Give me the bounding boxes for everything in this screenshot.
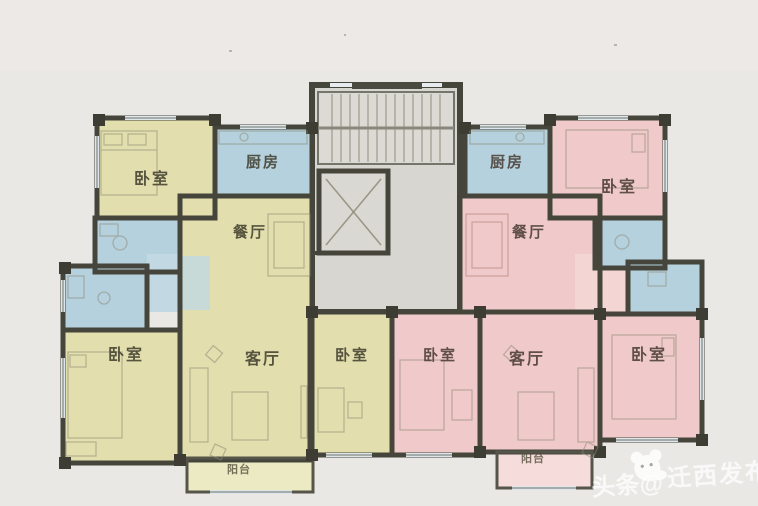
- label-right-dining: 餐厅: [512, 223, 546, 241]
- staircase-icon: [318, 92, 454, 164]
- room-left-bedroom-mid: [310, 312, 392, 455]
- elevator-x-icon: [319, 171, 388, 253]
- floor-plan-screenshot: 卧室 厨房 餐厅 卧室 客厅 卧室 阳台 厨房 卧室 餐厅 卧室 客厅 卧室 阳…: [0, 0, 758, 506]
- label-right-bedroom-mid: 卧室: [423, 346, 457, 364]
- label-left-living: 客厅: [245, 349, 281, 368]
- room-left-bath3: [182, 256, 210, 310]
- floor-plan-canvas: 卧室 厨房 餐厅 卧室 客厅 卧室 阳台 厨房 卧室 餐厅 卧室 客厅 卧室 阳…: [0, 0, 758, 506]
- label-left-bedroom-top: 卧室: [134, 169, 170, 188]
- label-left-balcony: 阳台: [227, 462, 251, 476]
- room-left-bedroom-top: [97, 118, 215, 218]
- label-left-bedroom-mid: 卧室: [335, 346, 369, 364]
- label-left-kitchen: 厨房: [246, 153, 280, 171]
- label-right-living: 客厅: [509, 349, 545, 368]
- room-right-bedroom-mid: [392, 312, 480, 455]
- room-right-living: [480, 312, 600, 452]
- central-core: [312, 82, 460, 312]
- label-left-bedroom-bottom: 卧室: [108, 345, 144, 364]
- room-right-bedroom-bottom: [600, 314, 702, 440]
- label-right-balcony: 阳台: [521, 451, 545, 465]
- room-left-hall: [147, 254, 178, 312]
- label-right-bedroom-bottom: 卧室: [631, 345, 667, 364]
- label-left-dining: 餐厅: [233, 223, 267, 241]
- paper-top-strip: [0, 0, 758, 70]
- label-right-kitchen: 厨房: [490, 153, 524, 171]
- label-right-bedroom-top: 卧室: [601, 177, 637, 196]
